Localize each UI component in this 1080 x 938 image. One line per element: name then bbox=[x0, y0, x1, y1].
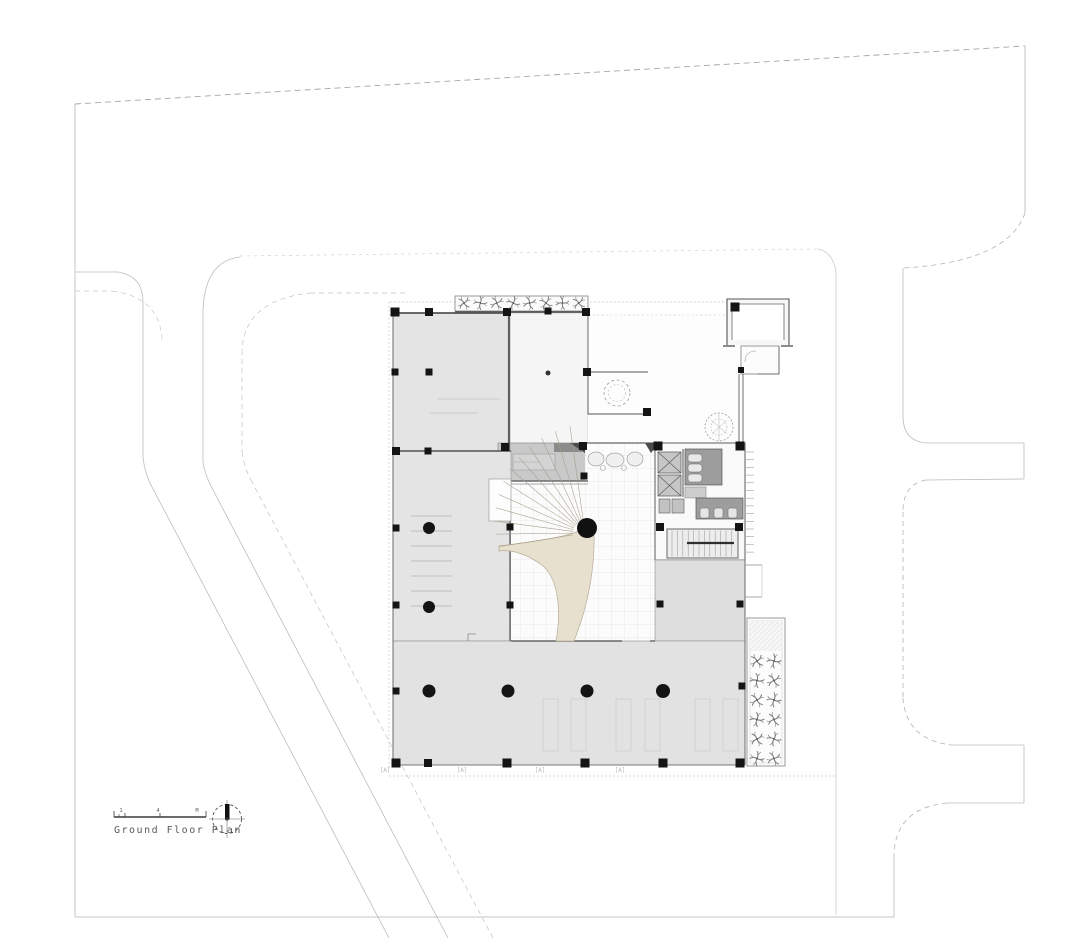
column-square bbox=[392, 369, 399, 376]
column-round bbox=[581, 685, 594, 698]
road-corner bbox=[894, 803, 947, 854]
column-square bbox=[393, 525, 400, 532]
south-hall bbox=[393, 641, 745, 765]
road-corner bbox=[903, 698, 952, 745]
column-square bbox=[654, 442, 663, 451]
column-square bbox=[426, 369, 433, 376]
column-square bbox=[581, 473, 588, 480]
room-north-center bbox=[510, 313, 588, 451]
lounge-planter bbox=[627, 452, 643, 466]
lounge-planter bbox=[588, 452, 604, 466]
bay-mark: [A] bbox=[457, 767, 468, 774]
column-square bbox=[501, 443, 509, 451]
column-square bbox=[392, 759, 401, 768]
column-square bbox=[659, 759, 668, 768]
sink-counter bbox=[685, 487, 706, 498]
scale-label: M bbox=[195, 808, 198, 814]
column-square bbox=[503, 308, 511, 316]
small-column bbox=[546, 371, 551, 376]
courtyard-plaza bbox=[588, 313, 745, 443]
column-square bbox=[581, 759, 590, 768]
column-square bbox=[739, 683, 746, 690]
column-square bbox=[393, 602, 400, 609]
setback-bend bbox=[242, 452, 251, 480]
road-bend bbox=[143, 458, 152, 487]
toilet-fixture bbox=[728, 508, 737, 518]
shaft-box bbox=[672, 499, 684, 513]
column-square bbox=[545, 308, 552, 315]
column-round bbox=[502, 685, 515, 698]
column-square bbox=[736, 759, 745, 768]
column-square bbox=[737, 601, 744, 608]
access-line-north bbox=[240, 249, 818, 256]
small-room bbox=[489, 479, 511, 521]
column-square bbox=[657, 601, 664, 608]
column-round bbox=[423, 601, 435, 613]
lounge-planter bbox=[606, 453, 624, 467]
gatehouse-inner-wall bbox=[732, 304, 784, 340]
scale-label: 4 bbox=[156, 808, 159, 814]
column-round bbox=[423, 522, 435, 534]
toilet-fixture bbox=[700, 508, 709, 518]
column-round bbox=[656, 684, 670, 698]
column-square bbox=[583, 368, 591, 376]
bay-mark: [A] bbox=[380, 767, 391, 774]
column-square bbox=[738, 367, 744, 373]
drawing-title: Ground Floor Plan bbox=[114, 825, 242, 836]
column-square bbox=[579, 442, 587, 450]
inner-boundary-corner bbox=[818, 249, 836, 272]
side-street-edge bbox=[926, 479, 1024, 480]
shaft-box bbox=[659, 499, 670, 513]
column-square bbox=[507, 524, 514, 531]
road-corner bbox=[903, 480, 926, 512]
east-paved-entry bbox=[750, 621, 782, 651]
room-east bbox=[655, 560, 745, 641]
room-northwest bbox=[393, 313, 510, 451]
setback-corner bbox=[242, 293, 312, 350]
road-corner bbox=[203, 257, 240, 310]
bay-mark: [A] bbox=[615, 767, 626, 774]
road-corner bbox=[903, 213, 1025, 268]
column-square bbox=[736, 442, 745, 451]
road-edge-diagonal bbox=[152, 487, 389, 938]
north-needle bbox=[225, 804, 230, 820]
toilet-fixture bbox=[688, 464, 702, 472]
column-square bbox=[582, 308, 590, 316]
column-square bbox=[392, 447, 400, 455]
feature-column bbox=[577, 518, 597, 538]
road-corner bbox=[118, 272, 143, 302]
floor-plan-drawing: [A][A][A][A]14M Ground Floor Plan bbox=[0, 0, 1080, 938]
floor-plan-sheet: [A][A][A][A]14M Ground Floor Plan bbox=[0, 0, 1080, 938]
column-square bbox=[643, 408, 651, 416]
column-square bbox=[391, 308, 400, 317]
toilet-fixture bbox=[714, 508, 723, 518]
column-square bbox=[503, 759, 512, 768]
column-square bbox=[393, 688, 400, 695]
road-bend bbox=[203, 462, 212, 488]
road-corner bbox=[903, 418, 926, 443]
compass-center bbox=[225, 817, 228, 820]
column-square bbox=[425, 308, 433, 316]
toilet-fixture bbox=[688, 474, 702, 482]
column-square bbox=[735, 523, 743, 531]
column-square bbox=[424, 759, 432, 767]
bay-mark: [A] bbox=[535, 767, 546, 774]
column-square bbox=[731, 303, 740, 312]
gatehouse-room bbox=[741, 346, 779, 374]
toilet-fixture bbox=[688, 454, 702, 462]
column-square bbox=[507, 602, 514, 609]
plan-render-root: [A][A][A][A]14M bbox=[75, 46, 1025, 938]
column-round bbox=[423, 685, 436, 698]
column-square bbox=[656, 523, 664, 531]
road-dashed-corner bbox=[112, 291, 162, 340]
site-edge-north-dashed bbox=[75, 46, 1025, 104]
column-square bbox=[425, 448, 432, 455]
scale-label: 1 bbox=[119, 808, 122, 814]
